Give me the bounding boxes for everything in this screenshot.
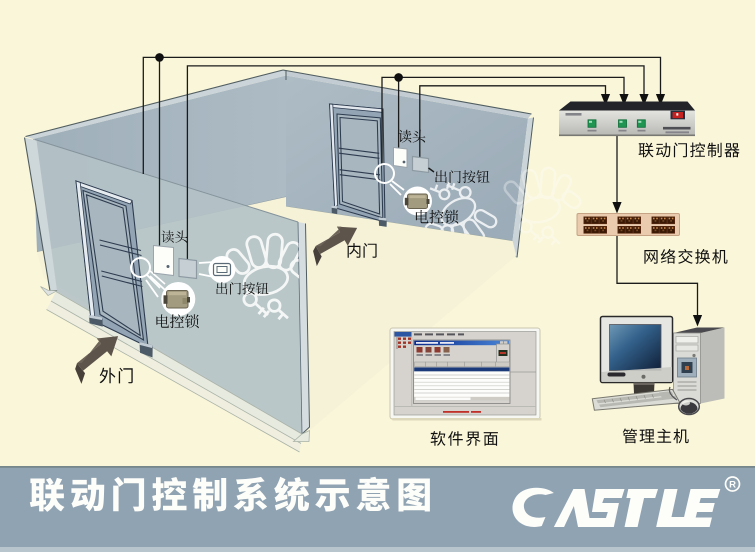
svg-text:R: R <box>729 480 736 491</box>
